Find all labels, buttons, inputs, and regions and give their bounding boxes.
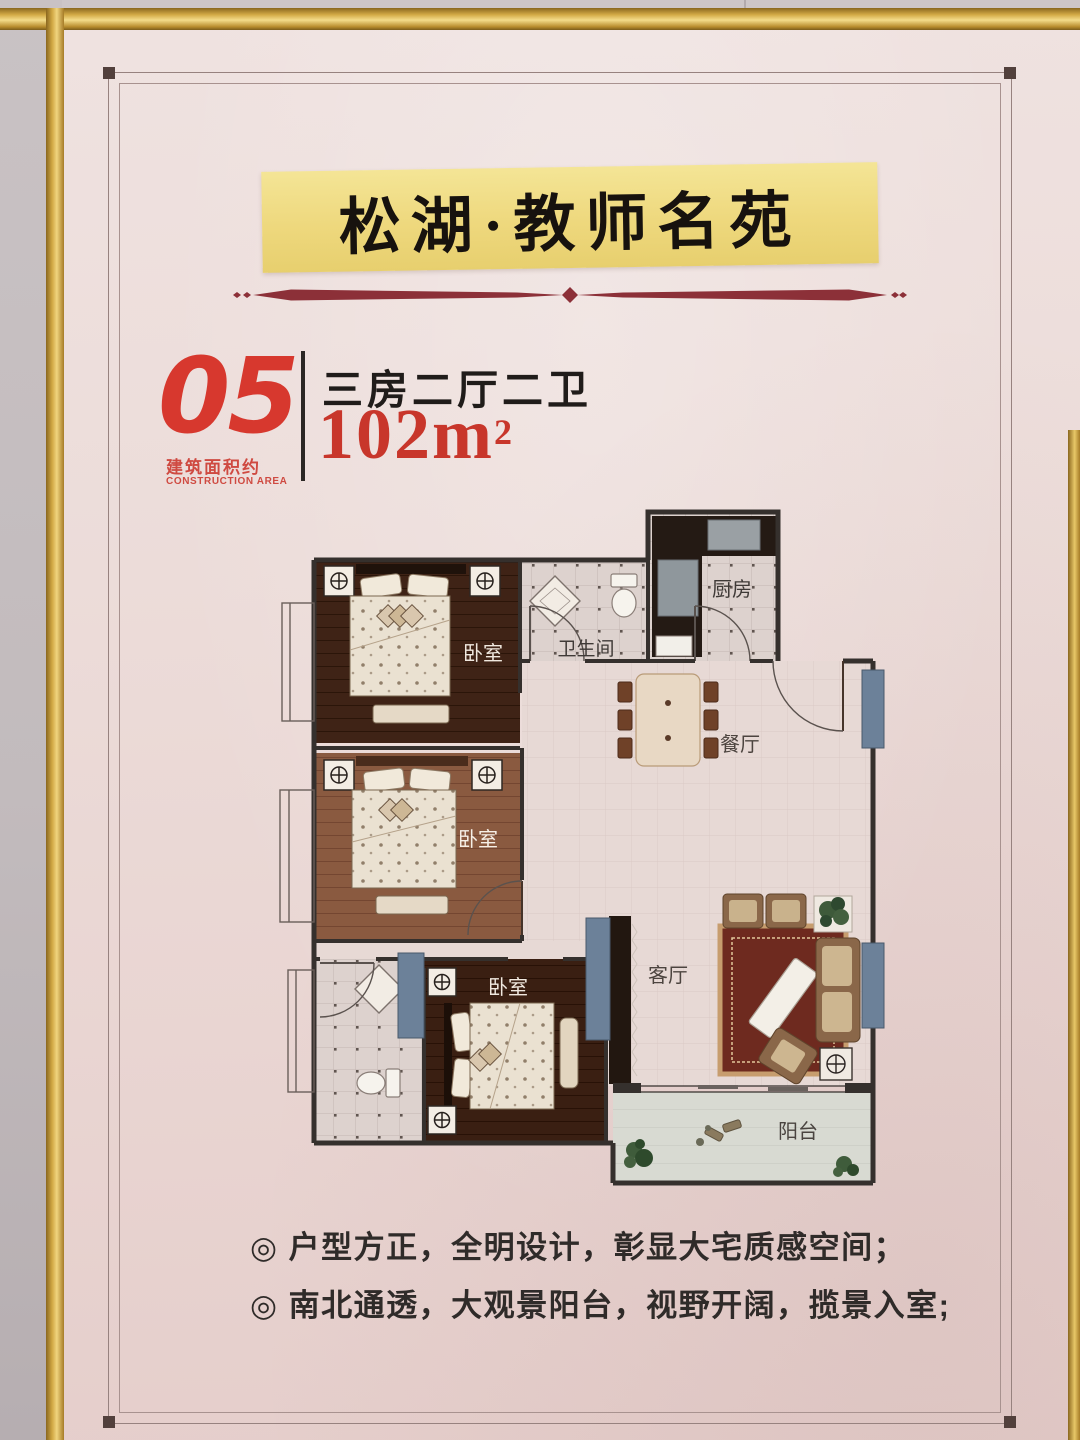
bay-windows xyxy=(280,603,314,1092)
chaise xyxy=(560,1018,578,1088)
kitchen-counter-sink xyxy=(658,560,698,616)
border-corner-ornament xyxy=(103,67,115,79)
nightstand-icon xyxy=(472,760,502,790)
side-table-icon xyxy=(820,1048,852,1080)
dining-table xyxy=(636,674,700,766)
area-number: 102m xyxy=(318,394,494,474)
bed-bench xyxy=(376,896,448,914)
border-corner-ornament xyxy=(103,1416,115,1428)
toilet-icon xyxy=(611,574,637,617)
armchair xyxy=(766,894,806,928)
picture-frame-left xyxy=(46,8,64,1440)
ornament-divider xyxy=(225,282,915,308)
tv-cabinet xyxy=(609,916,631,1084)
window-bedroom3-left xyxy=(398,953,424,1038)
armchair xyxy=(723,894,763,928)
bedroom3-label: 卧室 xyxy=(488,975,528,999)
unit-number: 05 xyxy=(158,342,308,451)
border-corner-ornament xyxy=(1004,67,1016,79)
spec-divider-line xyxy=(301,351,305,481)
bathroom-label: 卫生间 xyxy=(557,638,614,660)
nightstand-icon xyxy=(324,760,354,790)
balcony xyxy=(613,1092,873,1183)
window-dining xyxy=(862,670,884,748)
kitchen-appliance xyxy=(708,520,760,550)
bedroom1-label: 卧室 xyxy=(463,641,503,665)
area-note-cn: 建筑面积约 xyxy=(166,453,261,478)
area-note-en: CONSTRUCTION AREA xyxy=(166,476,288,487)
area-superscript: 2 xyxy=(494,412,512,452)
bedroom2-label: 卧室 xyxy=(458,827,498,851)
area-value: 102m2 xyxy=(318,398,512,470)
feature-line-1: ◎ 户型方正，全明设计，彰显大宅质感空间； xyxy=(250,1222,910,1267)
nightstand-icon xyxy=(324,566,354,596)
dining-label: 餐厅 xyxy=(720,732,760,756)
floor-plan: 卧室 卧室 卧室 卫生间 厨房 餐厅 客厅 阳台 xyxy=(268,498,900,1196)
window-living xyxy=(862,943,884,1028)
title-banner: 松湖·教师名苑 xyxy=(261,162,879,273)
border-corner-ornament xyxy=(1004,1416,1016,1428)
sofa xyxy=(816,938,860,1042)
nightstand-icon xyxy=(470,566,500,596)
picture-frame-top xyxy=(0,8,1080,30)
toilet-icon xyxy=(357,1069,400,1097)
feature-line-2: ◎ 南北通透，大观景阳台，视野开阔，揽景入室; xyxy=(250,1280,910,1325)
nightstand-icon xyxy=(428,968,456,996)
picture-frame-right xyxy=(1068,430,1080,1440)
bed-bench xyxy=(373,705,449,723)
plant-icon xyxy=(814,896,852,932)
kitchen-label: 厨房 xyxy=(712,577,752,601)
window-bedroom3-right xyxy=(586,918,610,1040)
nightstand-icon xyxy=(428,1106,456,1134)
living-label: 客厅 xyxy=(648,963,688,987)
balcony-label: 阳台 xyxy=(778,1119,818,1143)
project-title: 松湖·教师名苑 xyxy=(338,169,802,266)
